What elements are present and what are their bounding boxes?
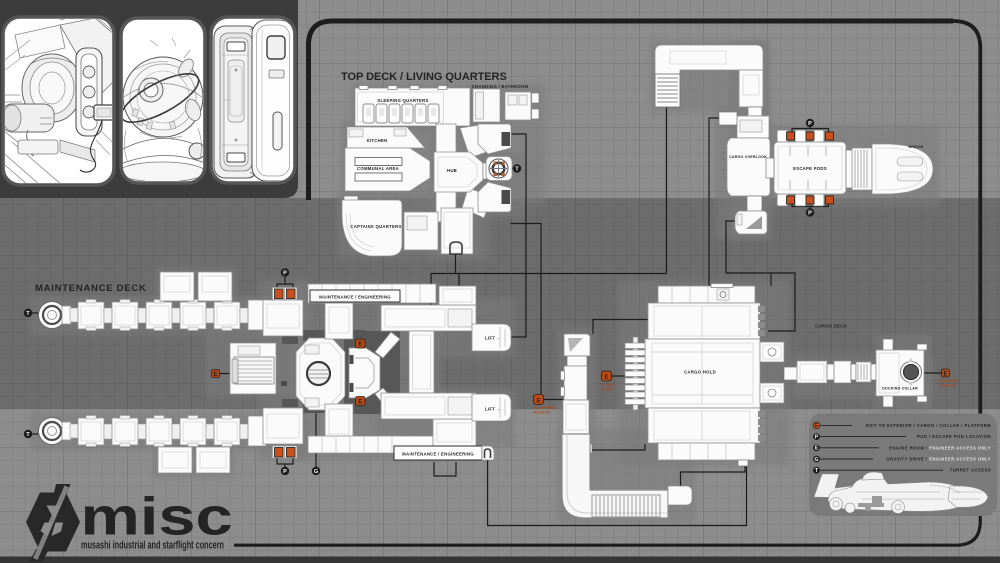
svg-text:T: T <box>515 167 519 173</box>
svg-text:P: P <box>283 469 287 475</box>
svg-text:E: E <box>213 372 217 378</box>
svg-text:COMMUNAL AREA: COMMUNAL AREA <box>357 166 399 171</box>
svg-text:CARGO DECK: CARGO DECK <box>815 324 848 329</box>
svg-text:G: G <box>815 457 819 463</box>
svg-text:HUB: HUB <box>447 168 457 173</box>
svg-text:E: E <box>358 400 362 406</box>
svg-text:E: E <box>943 372 947 378</box>
svg-text:DOCKING COLLAR: DOCKING COLLAR <box>882 387 918 391</box>
svg-text:E: E <box>536 398 540 404</box>
svg-text:RAMP: RAMP <box>602 388 614 392</box>
svg-text:T: T <box>26 432 30 438</box>
svg-text:CARGO OVERLOOK: CARGO OVERLOOK <box>729 155 767 159</box>
svg-text:G: G <box>314 469 318 475</box>
svg-text:CARGO HOLD: CARGO HOLD <box>684 370 716 375</box>
svg-text:LIFT: LIFT <box>485 407 495 412</box>
svg-text:E: E <box>358 342 362 348</box>
svg-text:COLLAR: COLLAR <box>940 384 956 388</box>
svg-text:DOCKING: DOCKING <box>940 379 958 383</box>
svg-text:CAPTAINS QUARTERS: CAPTAINS QUARTERS <box>350 224 401 229</box>
svg-text:POD / ESCAPE POD LOCATION: POD / ESCAPE POD LOCATION <box>917 434 991 439</box>
svg-text:P: P <box>283 271 287 277</box>
svg-text:ENGINE ROOM / ENGINEER ACCESS: ENGINE ROOM / ENGINEER ACCESS ONLY <box>889 445 991 450</box>
svg-text:BRIDGE: BRIDGE <box>908 145 924 149</box>
svg-text:P: P <box>808 121 812 127</box>
svg-text:CARGO: CARGO <box>602 383 616 387</box>
svg-text:TURRET ACCESS: TURRET ACCESS <box>950 468 991 473</box>
svg-text:musashi industrial and starfli: musashi industrial and starflight concer… <box>81 540 224 552</box>
svg-text:misc: misc <box>81 486 233 546</box>
svg-text:T: T <box>815 468 818 474</box>
svg-text:MAINTENANCE / ENGINEERING: MAINTENANCE / ENGINEERING <box>319 295 391 300</box>
svg-text:→: → <box>496 407 501 412</box>
svg-text:MAINTENANCE DECK: MAINTENANCE DECK <box>35 283 147 294</box>
svg-text:EXIT TO EXTERIOR / CARGO / COL: EXIT TO EXTERIOR / CARGO / COLLAR / PLAT… <box>866 423 991 428</box>
svg-text:SLEEPING QUARTERS: SLEEPING QUARTERS <box>377 98 428 103</box>
svg-text:CHANGING / BATHROOM: CHANGING / BATHROOM <box>472 84 529 89</box>
svg-text:→: → <box>496 336 501 341</box>
svg-text:PLATFORM: PLATFORM <box>534 406 555 410</box>
svg-text:ESCAPE PODS: ESCAPE PODS <box>793 166 827 171</box>
svg-text:T: T <box>26 311 30 317</box>
svg-text:GRAVITY DRIVE / ENGINEER ACCES: GRAVITY DRIVE / ENGINEER ACCESS ONLY <box>886 457 991 462</box>
svg-text:TOP DECK / LIVING QUARTERS: TOP DECK / LIVING QUARTERS <box>341 71 508 83</box>
svg-text:LIFT: LIFT <box>485 336 495 341</box>
svg-text:KITCHEN: KITCHEN <box>367 138 388 143</box>
svg-text:P: P <box>808 211 812 217</box>
svg-text:ACCESS: ACCESS <box>534 411 551 415</box>
svg-text:E: E <box>604 375 608 381</box>
svg-text:MAINTENANCE / ENGINEERING: MAINTENANCE / ENGINEERING <box>402 452 474 457</box>
